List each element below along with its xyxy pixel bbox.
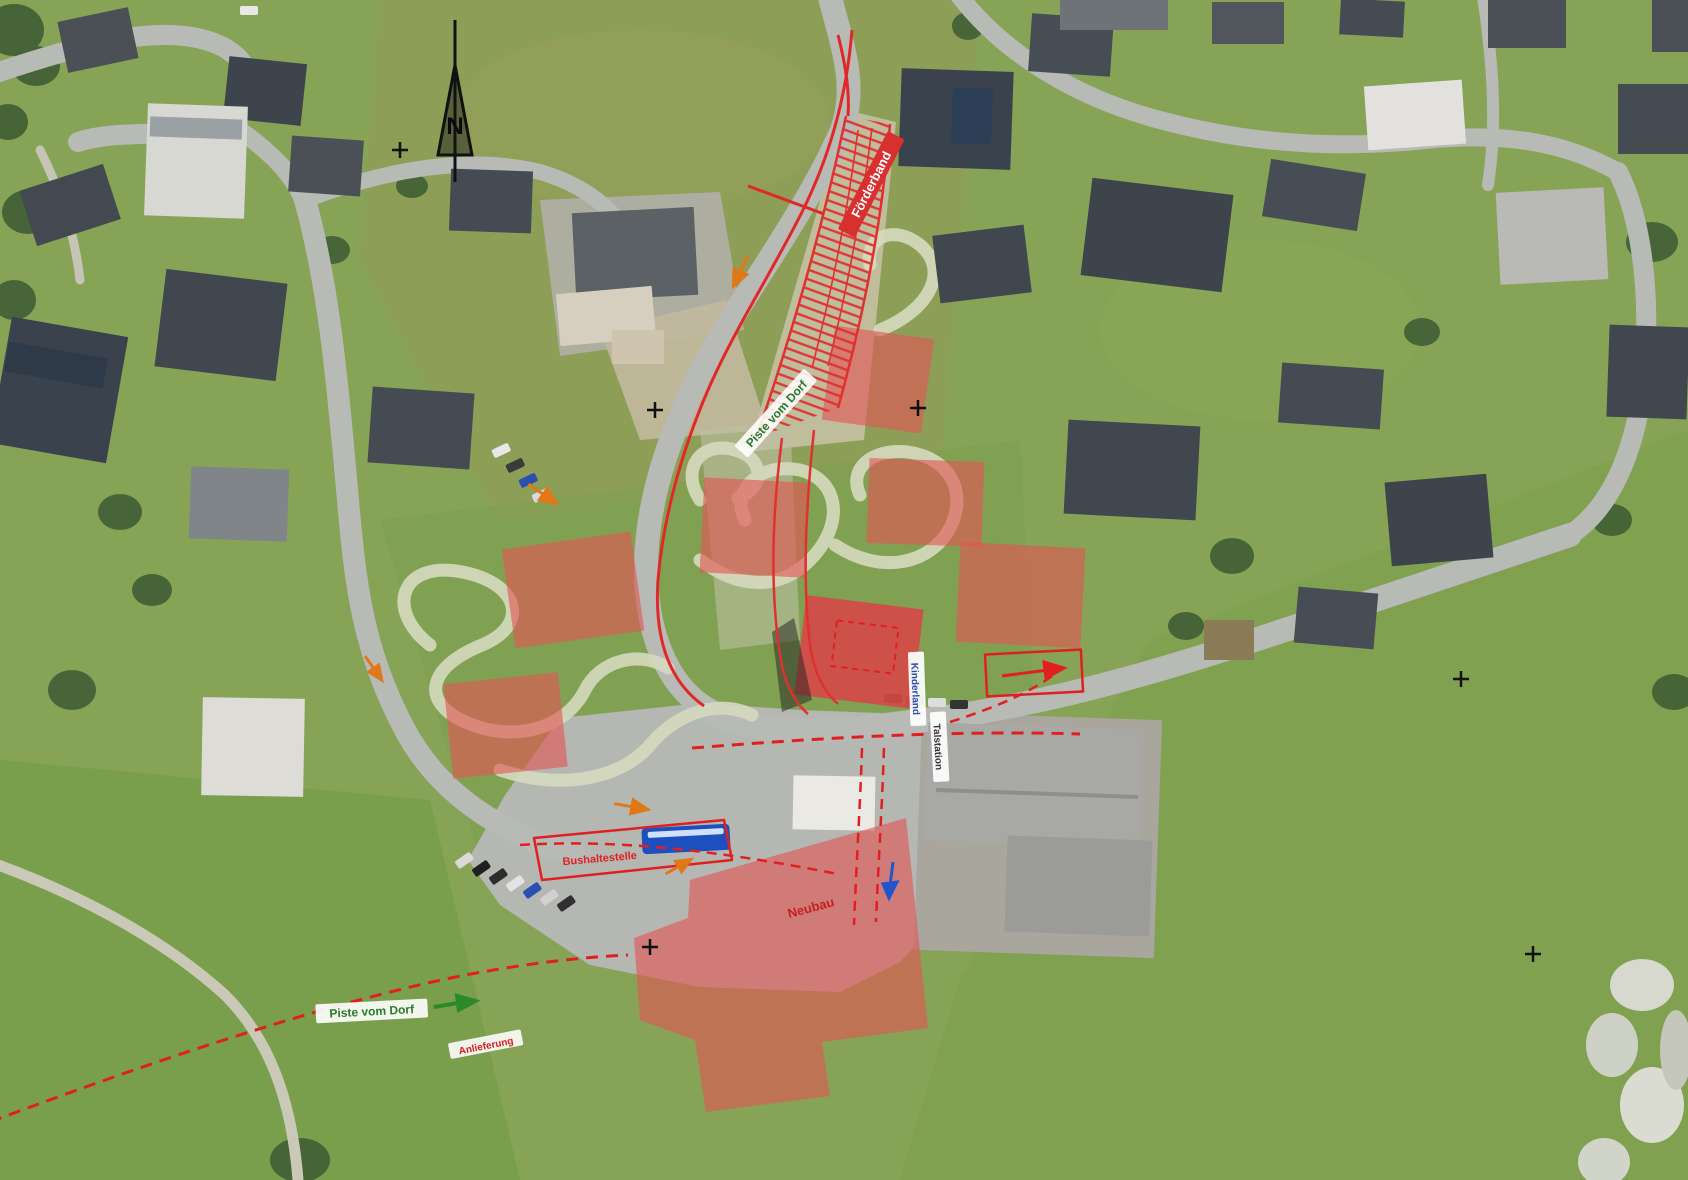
north-label: N bbox=[446, 113, 463, 140]
label-kinderland: Kinderland bbox=[908, 652, 927, 727]
aerial-site-plan: N Förderband Piste vom Dorf Kinderland T… bbox=[0, 0, 1688, 1180]
bus bbox=[641, 824, 730, 855]
map-canvas: N Förderband Piste vom Dorf Kinderland T… bbox=[0, 0, 1688, 1180]
svg-text:Kinderland: Kinderland bbox=[908, 663, 921, 716]
